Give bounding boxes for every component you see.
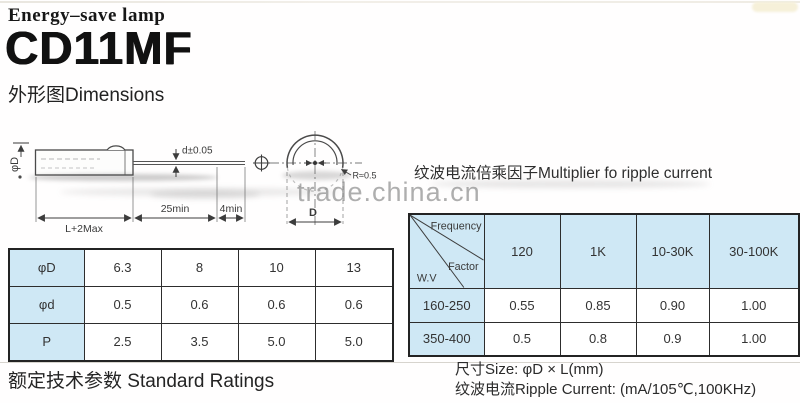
sleeve-bump [107,146,125,150]
crossed-circle-icon [253,155,270,172]
top-diameter-label: D [309,207,317,219]
cell: 3.5 [161,323,238,361]
freq-col-header: 120 [484,214,560,288]
lead-tolerance-label: d±0.05 [182,146,213,157]
cell: 0.9 [636,322,709,356]
cell: 0.6 [161,286,238,323]
table-row: φD 6.3 8 10 13 [9,249,393,286]
cell: 1.00 [709,288,799,322]
freq-col-header: 30-100K [709,214,799,288]
cell: 0.85 [560,288,636,322]
table-row: 350-400 0.5 0.8 0.9 1.00 [409,322,799,356]
scan-smudge [28,174,218,181]
cell: 0.8 [560,322,636,356]
cell: 1.00 [709,322,799,356]
table-row: φd 0.5 0.6 0.6 0.6 [9,286,393,323]
lead-min-label: 25min [161,203,190,215]
scan-smudge [430,180,710,188]
corner-frequency-label: Frequency [431,221,482,233]
table-row: 160-250 0.55 0.85 0.90 1.00 [409,288,799,322]
cell: 0.90 [636,288,709,322]
freq-col-header: 1K [560,214,636,288]
ripple-current-note: 纹波电流Ripple Current: (mA/105℃,100KHz) [455,378,756,399]
corner-wv-label: W.V [417,273,438,285]
standard-ratings-heading: 额定技术参数 Standard Ratings [8,366,274,393]
cell: 0.6 [238,286,315,323]
body-length-label: L+2Max [65,223,103,235]
freq-col-header: 10-30K [636,214,709,288]
phid-dot [18,175,21,178]
multiplier-table: Frequency Factor W.V 120 1K 10-30K 30-10… [408,213,800,357]
dimensions-section-heading: 外形图Dimensions [8,80,164,107]
scan-bottom-edge [0,362,800,363]
cell: 2.5 [84,323,161,361]
cell: 0.5 [484,322,560,356]
dimension-table: φD 6.3 8 10 13 φd 0.5 0.6 0.6 0.6 P 2.5 … [8,248,394,362]
datasheet-page: Energy–save lamp CD11MF 外形图Dimensions φD… [0,0,800,403]
table-row: P 2.5 3.5 5.0 5.0 [9,323,393,361]
cell: 0.5 [84,286,161,323]
cell: 0.6 [315,286,393,323]
tip-min-label: 4min [220,203,243,215]
corner-factor-label: Factor [448,261,479,273]
cell: 13 [315,249,393,286]
cell: 0.55 [484,288,560,322]
cell: 8 [161,249,238,286]
cell: 5.0 [315,323,393,361]
row-header-P: P [9,323,84,361]
table-header-row: Frequency Factor W.V 120 1K 10-30K 30-10… [409,214,799,288]
scan-smudge [150,190,260,199]
row-header-phid: φd [9,286,84,323]
cell: 5.0 [238,323,315,361]
body-diameter-label: φD [9,157,21,172]
corner-labels: Frequency Factor W.V [410,215,484,288]
diagonal-corner-cell: Frequency Factor W.V [409,214,484,288]
row-header-phiD: φD [9,249,84,286]
lead-center-dot [313,161,317,165]
scan-corner-smudge [752,2,798,12]
size-note: 尺寸Size: φD × L(mm) [455,358,604,379]
wv-range: 160-250 [409,288,484,322]
scan-smudge [282,171,352,180]
capacitor-body [36,150,134,175]
wv-range: 350-400 [409,322,484,356]
cell: 6.3 [84,249,161,286]
scan-top-edge [0,1,800,3]
cell: 10 [238,249,315,286]
model-number: CD11MF [5,25,192,71]
